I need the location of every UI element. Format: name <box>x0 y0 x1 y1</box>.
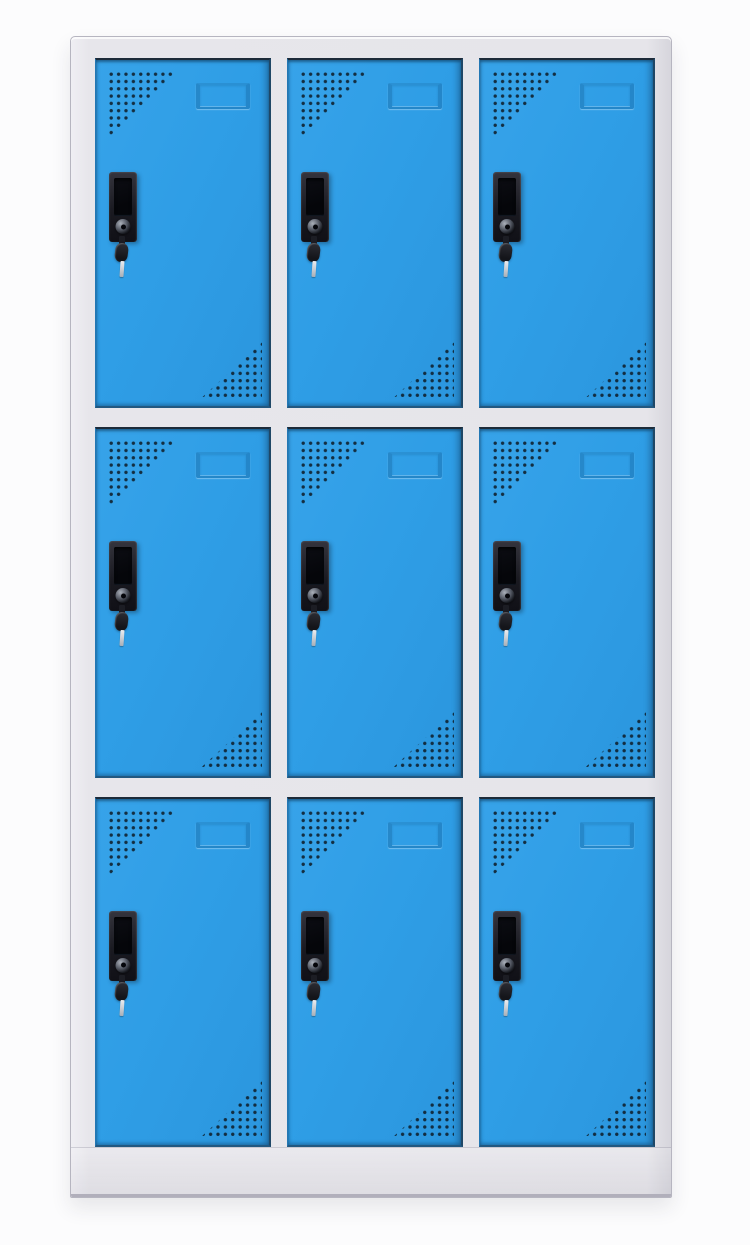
lock-cylinder <box>116 219 131 234</box>
lock-cylinder <box>116 588 131 603</box>
door-handle <box>493 541 521 611</box>
card-label-holder <box>388 452 442 478</box>
key-in-lock <box>495 240 517 280</box>
door-handle <box>301 911 329 981</box>
lock-cylinder <box>308 958 323 973</box>
vent-holes-top-left <box>493 441 560 506</box>
key-tip <box>119 630 124 646</box>
vent-holes-top-left <box>301 811 368 876</box>
key-tip <box>503 630 508 646</box>
handle-recess <box>306 547 324 585</box>
handle-recess <box>114 547 132 585</box>
vent-holes-bottom-right <box>585 1081 646 1137</box>
locker-door-r2c3 <box>479 427 655 777</box>
handle-recess <box>114 178 132 216</box>
locker-door-r1c1 <box>95 58 271 408</box>
card-label-holder <box>388 822 442 848</box>
vent-holes-top-left <box>493 72 560 137</box>
key-in-lock <box>495 609 517 649</box>
lock-cylinder <box>500 219 515 234</box>
door-handle <box>109 541 137 611</box>
door-handle <box>301 172 329 242</box>
key-head <box>114 242 129 262</box>
handle-recess <box>498 547 516 585</box>
key-in-lock <box>495 979 517 1019</box>
door-handle <box>301 541 329 611</box>
locker-cabinet <box>70 36 672 1198</box>
key-in-lock <box>111 979 133 1019</box>
key-tip <box>311 1000 316 1016</box>
locker-door-r3c1 <box>95 797 271 1147</box>
door-handle <box>493 172 521 242</box>
product-photo <box>0 0 750 1245</box>
door-handle <box>493 911 521 981</box>
key-head <box>306 242 321 262</box>
lock-cylinder <box>308 219 323 234</box>
key-head <box>498 242 513 262</box>
lock-cylinder <box>500 588 515 603</box>
vent-holes-bottom-right <box>585 342 646 398</box>
vent-holes-bottom-right <box>585 712 646 768</box>
locker-door-r3c3 <box>479 797 655 1147</box>
vent-holes-bottom-right <box>201 1081 262 1137</box>
door-handle <box>109 172 137 242</box>
key-in-lock <box>111 609 133 649</box>
key-head <box>114 981 129 1001</box>
card-label-holder <box>580 822 634 848</box>
handle-recess <box>498 178 516 216</box>
key-tip <box>311 630 316 646</box>
locker-door-r3c2 <box>287 797 463 1147</box>
handle-recess <box>306 178 324 216</box>
vent-holes-top-left <box>301 441 368 506</box>
key-in-lock <box>303 609 325 649</box>
key-tip <box>503 1000 508 1016</box>
card-label-holder <box>388 83 442 109</box>
card-label-holder <box>196 822 250 848</box>
locker-door-r2c2 <box>287 427 463 777</box>
locker-door-r2c1 <box>95 427 271 777</box>
key-in-lock <box>303 240 325 280</box>
lock-cylinder <box>308 588 323 603</box>
handle-recess <box>306 917 324 955</box>
vent-holes-bottom-right <box>201 712 262 768</box>
door-handle <box>109 911 137 981</box>
handle-recess <box>498 917 516 955</box>
key-in-lock <box>111 240 133 280</box>
locker-door-r1c3 <box>479 58 655 408</box>
lock-cylinder <box>500 958 515 973</box>
key-head <box>306 981 321 1001</box>
card-label-holder <box>196 452 250 478</box>
locker-door-r1c2 <box>287 58 463 408</box>
vent-holes-bottom-right <box>393 1081 454 1137</box>
card-label-holder <box>580 452 634 478</box>
key-tip <box>119 1000 124 1016</box>
vent-holes-top-left <box>109 811 176 876</box>
card-label-holder <box>580 83 634 109</box>
key-tip <box>119 261 124 277</box>
key-tip <box>311 261 316 277</box>
vent-holes-top-left <box>493 811 560 876</box>
card-label-holder <box>196 83 250 109</box>
vent-holes-bottom-right <box>393 342 454 398</box>
key-tip <box>503 261 508 277</box>
key-head <box>498 981 513 1001</box>
vent-holes-top-left <box>301 72 368 137</box>
locker-doors-grid <box>95 58 655 1147</box>
cabinet-base-plinth <box>71 1147 671 1197</box>
vent-holes-bottom-right <box>393 712 454 768</box>
vent-holes-top-left <box>109 72 176 137</box>
lock-cylinder <box>116 958 131 973</box>
key-in-lock <box>303 979 325 1019</box>
vent-holes-bottom-right <box>201 342 262 398</box>
vent-holes-top-left <box>109 441 176 506</box>
handle-recess <box>114 917 132 955</box>
